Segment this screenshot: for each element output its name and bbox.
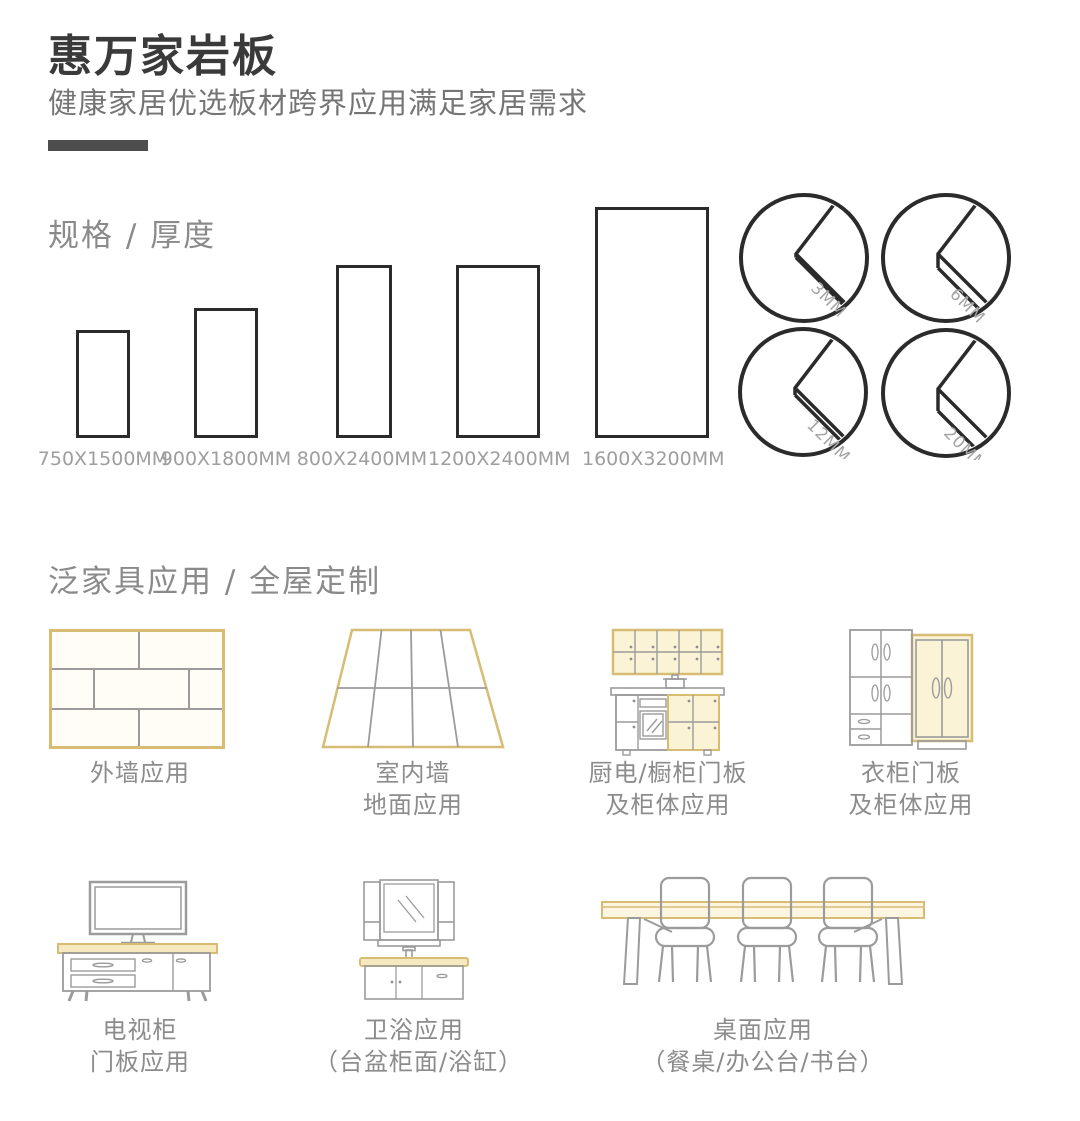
app-label-kitchen: 厨电/橱柜门板及柜体应用 (568, 757, 768, 821)
app-label-interior-floor: 室内墙地面应用 (313, 757, 513, 821)
size-label: 750X1500MM (33, 448, 173, 470)
specs-heading: 规格 / 厚度 (48, 210, 216, 255)
app-label-table: 桌面应用（餐桌/办公台/书台） (613, 1014, 913, 1078)
thickness-circle-3mm: 3MM (737, 191, 871, 325)
app-label-wardrobe: 衣柜门板及柜体应用 (811, 757, 1011, 821)
tv-cabinet-icon (55, 880, 220, 1002)
bathroom-vanity-icon (358, 878, 470, 1003)
slab-1600x3200 (595, 207, 709, 438)
exterior-wall-icon (49, 629, 225, 749)
slab-800x2400 (336, 265, 392, 438)
divider-bar (48, 140, 148, 151)
slab-750x1500 (76, 330, 130, 438)
app-label-bathroom: 卫浴应用（台盆柜面/浴缸） (314, 1014, 514, 1078)
applications-heading: 泛家具应用 / 全屋定制 (48, 556, 381, 601)
app-label-exterior-wall: 外墙应用 (40, 757, 240, 789)
dining-table-icon (598, 872, 928, 992)
thickness-circle-6mm: 6MM (879, 191, 1013, 325)
brochure-page: 惠万家岩板 健康家居优选板材跨界应用满足家居需求 规格 / 厚度 750X150… (0, 0, 1080, 1121)
thickness-circle-12mm: 12MM (736, 325, 870, 459)
kitchen-cabinet-icon (610, 626, 725, 756)
page-subtitle: 健康家居优选板材跨界应用满足家居需求 (48, 80, 588, 122)
app-label-tv-cabinet: 电视柜门板应用 (40, 1014, 240, 1078)
size-label: 800X2400MM (292, 448, 432, 470)
thickness-circle-20mm: 20MM (879, 326, 1013, 460)
page-title: 惠万家岩板 (48, 20, 278, 84)
size-label: 900X1800MM (156, 448, 296, 470)
interior-floor-icon (320, 628, 506, 749)
slab-1200x2400 (456, 265, 540, 438)
wardrobe-icon (848, 628, 976, 752)
size-label: 1600X3200MM (582, 448, 722, 470)
size-label: 1200X2400MM (428, 448, 568, 470)
slab-900x1800 (194, 308, 258, 438)
